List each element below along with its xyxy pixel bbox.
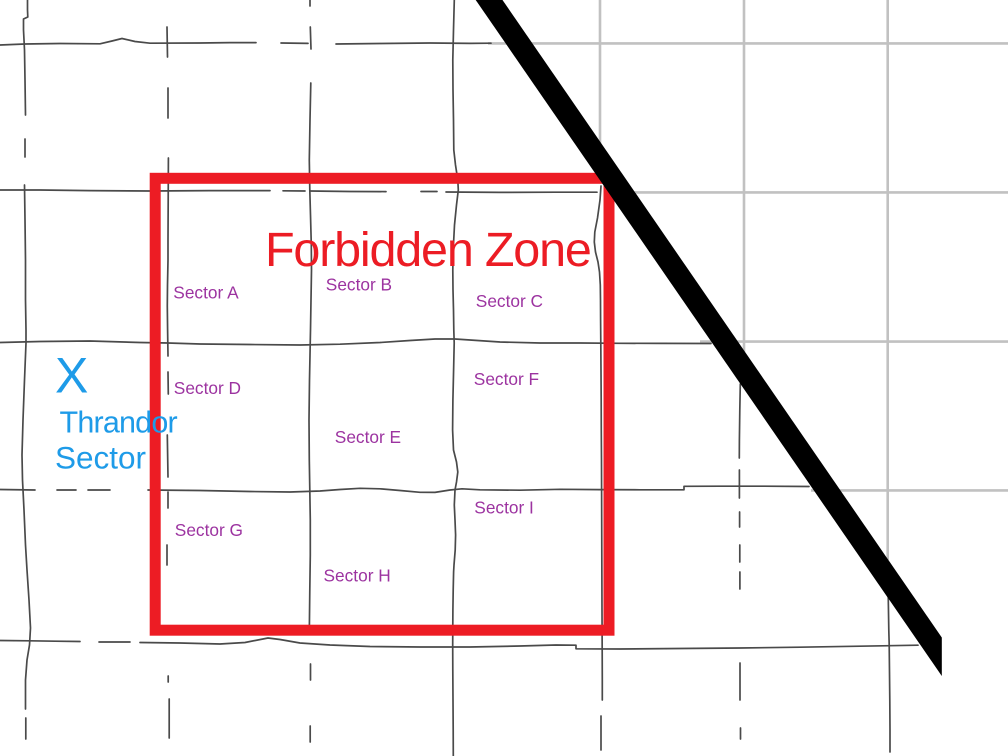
svg-text:Sector E: Sector E (335, 427, 401, 447)
svg-text:Sector: Sector (55, 440, 146, 476)
svg-text:X: X (55, 347, 88, 403)
svg-text:Sector B: Sector B (326, 274, 392, 294)
svg-text:Sector A: Sector A (173, 283, 239, 303)
svg-text:Sector D: Sector D (174, 378, 241, 398)
svg-text:Sector I: Sector I (474, 498, 534, 518)
svg-text:Sector H: Sector H (324, 566, 391, 586)
svg-text:Thrandor: Thrandor (60, 405, 178, 439)
svg-text:Sector F: Sector F (474, 369, 539, 389)
svg-text:Sector C: Sector C (476, 291, 543, 311)
svg-text:Sector G: Sector G (175, 520, 243, 540)
svg-text:Forbidden Zone: Forbidden Zone (265, 223, 591, 277)
